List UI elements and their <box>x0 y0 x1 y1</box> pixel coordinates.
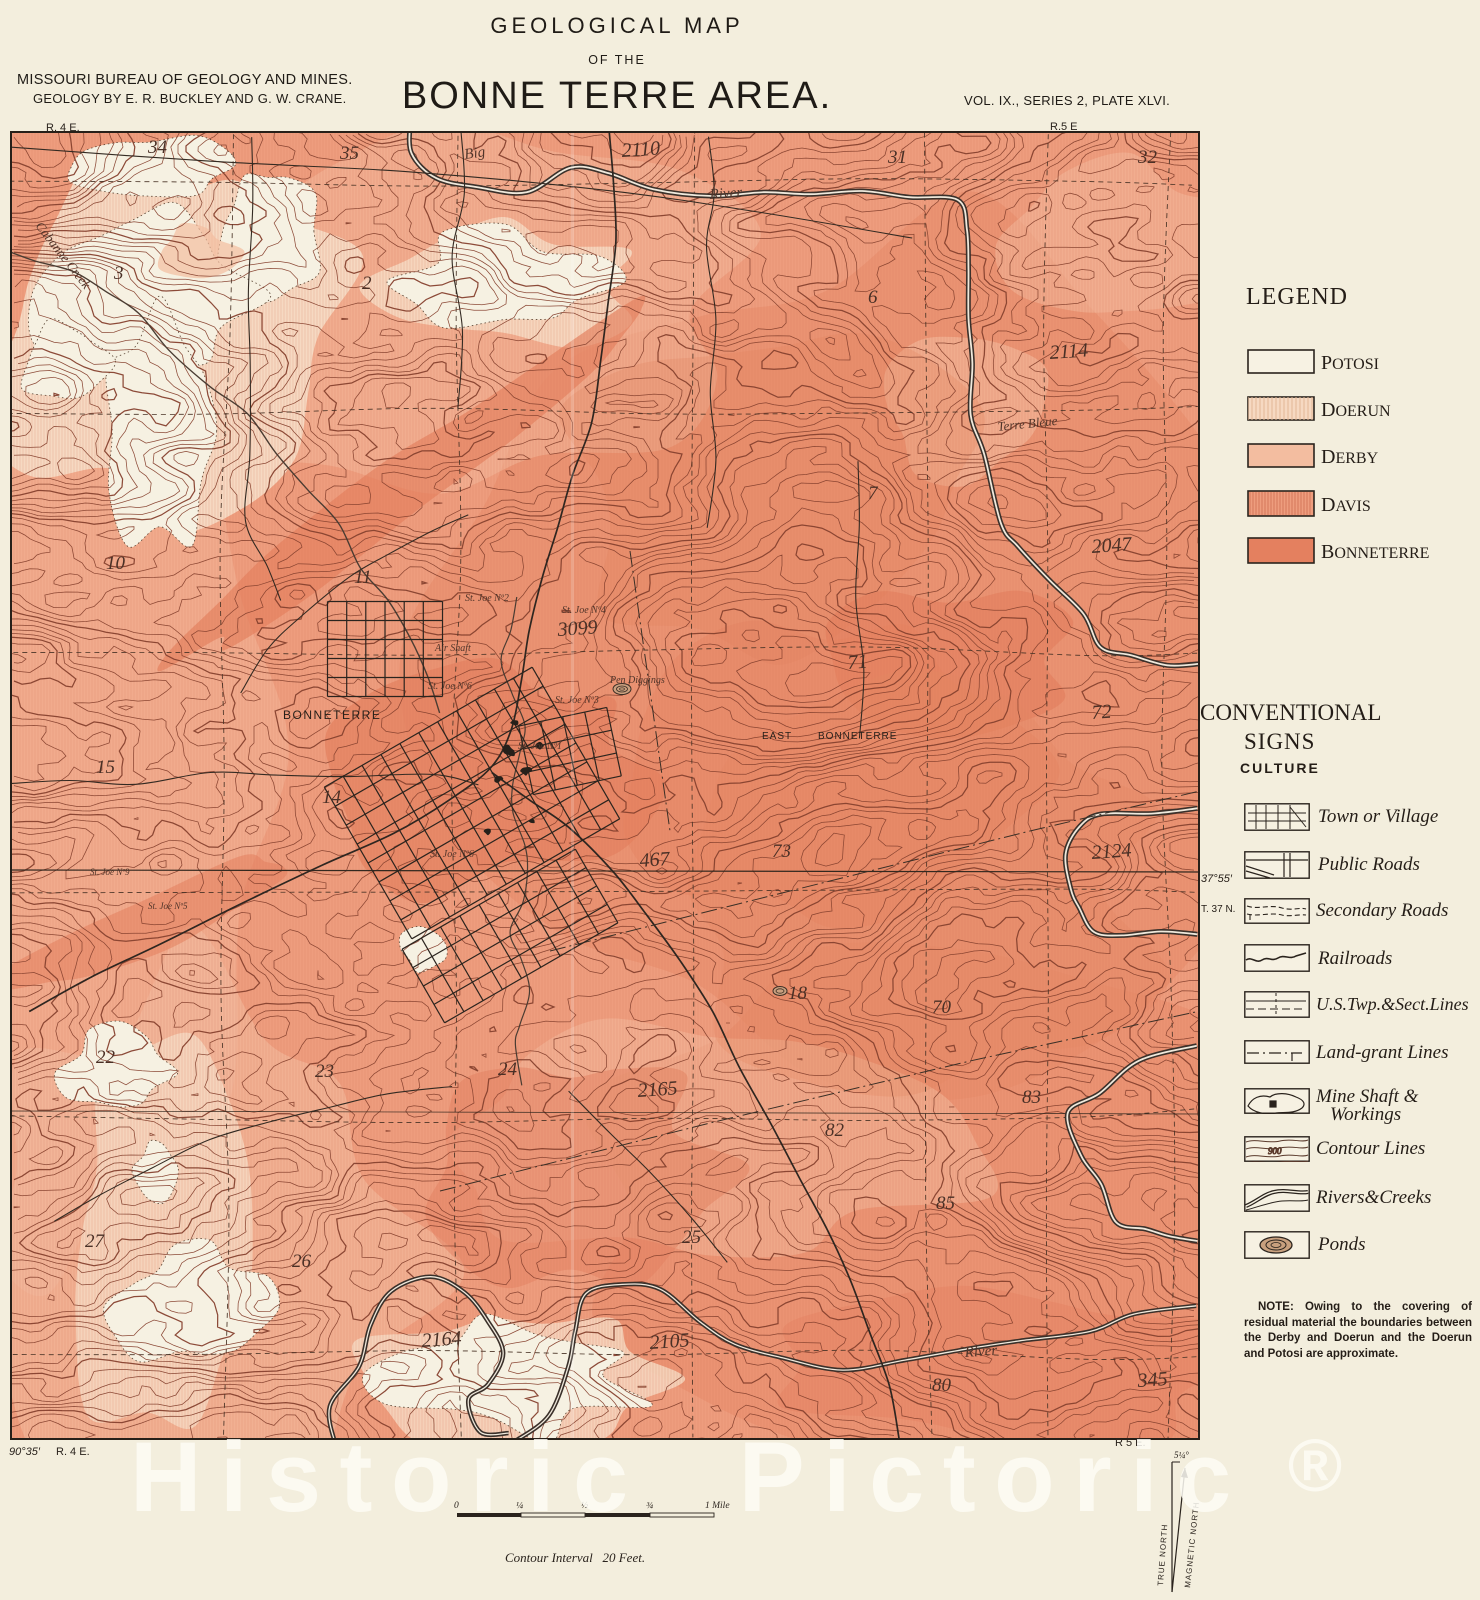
svg-text:Pen Diggings: Pen Diggings <box>609 675 665 686</box>
svg-text:BONNETERRE: BONNETERRE <box>283 708 381 722</box>
svg-text:72: 72 <box>1091 701 1112 724</box>
svg-text:2105: 2105 <box>649 1329 690 1354</box>
svg-text:71: 71 <box>847 651 868 674</box>
svg-text:St. Joe Nº6: St. Joe Nº6 <box>430 849 474 860</box>
svg-text:32: 32 <box>1137 147 1158 168</box>
svg-text:Big: Big <box>463 144 486 163</box>
svg-text:St. Joe Nº3: St. Joe Nº3 <box>555 695 599 706</box>
svg-text:22: 22 <box>96 1047 116 1068</box>
svg-text:6: 6 <box>868 287 878 308</box>
svg-text:St. Joe Nº1: St. Joe Nº1 <box>518 741 562 752</box>
svg-text:24: 24 <box>498 1059 518 1080</box>
svg-text:900: 900 <box>1268 1146 1282 1156</box>
svg-text:82: 82 <box>825 1120 845 1141</box>
svg-text:2047: 2047 <box>1091 533 1133 558</box>
svg-text:2114: 2114 <box>1049 339 1089 364</box>
svg-text:2110: 2110 <box>621 137 661 162</box>
svg-text:15: 15 <box>96 757 115 778</box>
svg-text:St. Joe Nº2: St. Joe Nº2 <box>465 593 509 604</box>
svg-text:2: 2 <box>362 273 372 294</box>
svg-text:345: 345 <box>1136 1368 1168 1392</box>
svg-text:10: 10 <box>106 553 126 574</box>
svg-text:31: 31 <box>887 147 907 168</box>
svg-text:2124: 2124 <box>1091 839 1132 864</box>
svg-text:3099: 3099 <box>556 616 598 641</box>
svg-text:73: 73 <box>772 841 791 862</box>
svg-text:35: 35 <box>339 143 359 164</box>
svg-text:St. Joe Nº9: St. Joe Nº9 <box>90 867 130 877</box>
svg-text:18: 18 <box>788 983 808 1004</box>
svg-text:26: 26 <box>292 1251 312 1272</box>
svg-text:70: 70 <box>932 997 952 1018</box>
svg-text:23: 23 <box>315 1061 334 1082</box>
svg-text:BONNETERRE: BONNETERRE <box>818 731 897 742</box>
svg-text:7: 7 <box>868 483 879 504</box>
svg-text:80: 80 <box>932 1375 952 1396</box>
svg-text:St. Joe Nº5: St. Joe Nº5 <box>148 901 188 911</box>
svg-text:85: 85 <box>936 1193 955 1214</box>
svg-text:34: 34 <box>147 137 168 158</box>
svg-text:25: 25 <box>682 1227 701 1248</box>
svg-text:3: 3 <box>113 263 124 284</box>
svg-text:EAST: EAST <box>762 731 792 742</box>
svg-text:83: 83 <box>1022 1087 1041 1108</box>
svg-text:River: River <box>708 185 743 203</box>
svg-text:2164: 2164 <box>421 1327 462 1352</box>
svg-text:St. Joe Nº6: St. Joe Nº6 <box>428 681 472 692</box>
svg-text:St. Joe Nº4: St. Joe Nº4 <box>562 605 606 616</box>
svg-text:467: 467 <box>639 848 671 872</box>
svg-text:14: 14 <box>322 787 342 808</box>
svg-text:2165: 2165 <box>637 1077 678 1102</box>
svg-text:11: 11 <box>354 567 372 588</box>
svg-text:27: 27 <box>85 1231 106 1252</box>
svg-text:River: River <box>963 1343 998 1361</box>
svg-text:Air Shaft: Air Shaft <box>434 643 471 654</box>
